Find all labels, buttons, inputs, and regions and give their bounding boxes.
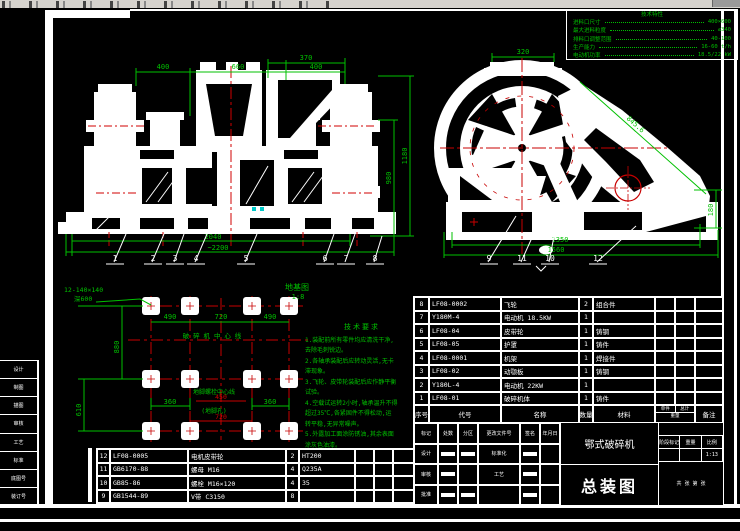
spec-row: 排料口调整范围40-100 (567, 34, 737, 42)
margin-strip-row: 装订号 (0, 487, 37, 505)
bom-cell: 9 (97, 490, 110, 504)
bom-cell (675, 338, 695, 352)
bom-cell: 破碎机体 (501, 392, 579, 406)
bom-cell (675, 324, 695, 338)
front-view-balloons: 1 2 3 4 5 6 7 8 (106, 234, 384, 264)
bom-cell (695, 365, 723, 379)
bom-cell: 飞轮 (501, 297, 579, 311)
note-line: 转平稳,无异常噪声。 (305, 420, 419, 431)
bom-cell: V带 C3150 (188, 490, 286, 504)
cad-drawing-canvas: 400 660 400 370 1180 980 2040 ~2200 1 (0, 0, 740, 531)
tb-right-top-cell (659, 423, 723, 436)
dim-610: 610 (75, 404, 83, 417)
bom-cell: 电机皮带轮 (188, 449, 286, 463)
note-line: 去除毛刺锐边。 (305, 346, 419, 357)
bom-cell: Y180M-4 (429, 311, 501, 325)
bom-cell: 4 (414, 351, 429, 365)
balloon-5: 5 (244, 254, 249, 263)
bom-cell (393, 476, 415, 490)
dim-720-top: 720 (215, 313, 228, 321)
margin-strip-row: 标准 (0, 451, 37, 469)
dim-400-right: 400 (310, 63, 323, 71)
tb-label: 比例 (702, 436, 723, 448)
bolt-callout-line2: 深600 (74, 294, 92, 303)
bom-cell (675, 311, 695, 325)
spec-label: 最大进料粒度 (573, 26, 606, 34)
bom-cell: 1 (579, 351, 593, 365)
bom-cell: 6 (414, 324, 429, 338)
dim-490-left: 490 (164, 313, 177, 321)
balloon-3: 3 (173, 254, 178, 263)
margin-strip-row: 描图 (0, 396, 37, 414)
signature-mark (461, 493, 475, 497)
tb-cell (540, 464, 560, 485)
spec-row: 生产能力16-60 t/h (567, 43, 737, 51)
dim-1180: 1180 (401, 148, 409, 165)
bom-cell (593, 311, 655, 325)
bom-cell (695, 297, 723, 311)
dim-180: 180 (707, 204, 715, 217)
bom-cell (393, 490, 415, 504)
leader-dots (605, 54, 694, 56)
bom-cell (655, 351, 675, 365)
signature-mark (523, 452, 537, 456)
bom-cell (655, 338, 675, 352)
dim-370: 370 (300, 54, 313, 62)
bom-cell: 11 (97, 463, 110, 477)
bom-cell (675, 365, 695, 379)
bom-cell: 螺栓 M16×120 (188, 476, 286, 490)
bom-cell (675, 351, 695, 365)
bom-cell: GB85-86 (110, 476, 188, 490)
tb-label: 阶段标记 (659, 436, 680, 448)
bom-cell: 电动机 22KW (501, 378, 579, 392)
balloon-8: 8 (373, 254, 378, 263)
bom-cell (355, 490, 374, 504)
bom-cell: 护罩 (501, 338, 579, 352)
bom-cell: GB1544-89 (110, 490, 188, 504)
dim-660: 660 (232, 63, 245, 71)
bom-table-right: 8 LF08-0002 飞轮 2 组合件 7 Y180M-4 电动机 18.5K… (413, 296, 724, 424)
tb-label: 更改文件号 (478, 423, 520, 444)
bom-cell: 1 (579, 378, 593, 392)
tb-label: 审核 (414, 464, 438, 485)
bom-header-cell: 序号 (414, 405, 429, 423)
note-line: 3.飞轮、皮带轮装配后应作静平衡 (305, 378, 419, 389)
sheet-count-cell: 共 张 第 张 (659, 462, 723, 505)
bom-cell: LF08-0001 (429, 351, 501, 365)
balloon-12: 12 (593, 254, 603, 263)
dim-490-right: 490 (264, 313, 277, 321)
spec-row: 最大进料粒度≤340 (567, 26, 737, 34)
bom-cell (355, 463, 374, 477)
bom-cell (355, 476, 374, 490)
dim-880: 880 (113, 341, 121, 354)
bom-cell: GB6170-88 (110, 463, 188, 477)
bom-table-left: 12 LF08-0005 电机皮带轮 2 HT200 11 GB6170-88 … (96, 448, 416, 504)
dim-400-left: 400 (157, 63, 170, 71)
bom-cell (655, 324, 675, 338)
bom-cell: 电动机 18.5KW (501, 311, 579, 325)
tb-cell (458, 485, 478, 506)
drawing-type-title: 总装图 (561, 465, 658, 506)
bom-cell (695, 392, 723, 406)
bom-header-weight-cell: 单件 总计 重量 (655, 405, 695, 423)
note-line: 试验。 (305, 388, 419, 399)
tb-label: 年月日 (540, 423, 560, 444)
note-line: 1.装配前所有零件均应清洗干净, (305, 336, 419, 347)
foundation-dimensions (78, 299, 289, 431)
tb-label: 工艺 (478, 464, 520, 485)
signature-mark (461, 452, 475, 456)
bom-cell: 4 (286, 463, 299, 477)
bom-cell: LF08-04 (429, 324, 501, 338)
spec-value: 18.5/22 kW (698, 52, 731, 58)
bom-cell: LF08-0005 (110, 449, 188, 463)
bom-cell: 铸件 (593, 392, 655, 406)
bom-cell: 1 (414, 392, 429, 406)
bom-cell (655, 297, 675, 311)
bom-header-cell: 材料 (593, 405, 655, 423)
spec-value: ≤340 (718, 27, 731, 33)
tb-label: 标准化 (478, 444, 520, 465)
tb-cell (520, 485, 540, 506)
balloon-1: 1 (113, 254, 118, 263)
bom-cell (393, 449, 415, 463)
tb-cell (438, 485, 458, 506)
foundation-title: 地基图 (285, 282, 309, 292)
bom-cell: 1 (579, 338, 593, 352)
note-line: 2.各轴承装配后应转动灵活,无卡 (305, 357, 419, 368)
bom-header-cell: 备注 (695, 405, 723, 423)
dim-320: 320 (517, 48, 530, 56)
drawing-scale-value: 1:13 (702, 449, 723, 461)
bom-cell: 1 (579, 392, 593, 406)
leader-dots (605, 21, 704, 23)
bom-cell: 2 (579, 297, 593, 311)
leader-dots (616, 38, 708, 40)
label-crusher-centerline: 破 碎 机 中 心 线 (183, 331, 242, 340)
spec-label: 排料口调整范围 (573, 35, 612, 43)
spec-value: 16-60 t/h (701, 44, 731, 50)
margin-strip-row: 制图 (0, 378, 37, 396)
signature-mark (523, 493, 537, 497)
tb-cell (458, 464, 478, 485)
balloon-11: 11 (517, 254, 527, 263)
spec-value: 400×600 (708, 19, 731, 25)
bom-cell (695, 311, 723, 325)
bom-cell: LF08-0002 (429, 297, 501, 311)
tb-cell (478, 485, 520, 506)
bom-cell: 1 (579, 365, 593, 379)
notes-title: 技术要求 (305, 322, 419, 333)
dim-1560: 1560 (548, 246, 565, 254)
bom-cell (655, 378, 675, 392)
technical-notes: 技术要求 1.装配前所有零件均应清洗干净, 去除毛刺锐边。 2.各轴承装配后应转… (305, 322, 419, 451)
dim-360-left: 360 (164, 398, 177, 406)
leader-dots (599, 46, 697, 48)
bom-header-cell: 数量 (579, 405, 593, 423)
bom-cell (374, 476, 393, 490)
tb-value (680, 449, 701, 461)
tb-right-values: 1:13 (659, 449, 723, 462)
bom-cell: 1 (579, 324, 593, 338)
bom-cell (374, 490, 393, 504)
bom-cell: 35 (299, 476, 355, 490)
side-view: 320 845.6 180 1350 1560 9 11 10 12 (440, 48, 722, 271)
balloon-9: 9 (487, 254, 492, 263)
bom-cell: 10 (97, 476, 110, 490)
dim-980: 980 (385, 172, 393, 185)
bom-cell: 12 (97, 449, 110, 463)
signature-mark (441, 472, 455, 476)
margin-strip-row: 审核 (0, 414, 37, 432)
bolt-callout-line1: 12-140×140 (64, 286, 103, 294)
tb-cell (438, 464, 458, 485)
tb-cell (458, 444, 478, 465)
bom-cell: Q235A (299, 463, 355, 477)
bom-cell (695, 324, 723, 338)
bom-header-cell: 名称 (501, 405, 579, 423)
bom-cell: 4 (286, 476, 299, 490)
tb-label: 标记 (414, 423, 438, 444)
tb-cell (540, 485, 560, 506)
spec-table-title: 技术特性 (567, 10, 737, 18)
balloon-10: 10 (545, 254, 555, 263)
bom-cell: 铸钢 (593, 365, 655, 379)
bom-cell: LF08-02 (429, 365, 501, 379)
title-block-right: 阶段标记 重量 比例 1:13 共 张 第 张 (659, 423, 723, 505)
signature-mark (441, 452, 455, 456)
balloon-4: 4 (194, 254, 199, 263)
bom-cell (695, 338, 723, 352)
bom-cell (374, 463, 393, 477)
bom-cell: HT200 (299, 449, 355, 463)
title-block-revision-grid: 标记 处数 分区 更改文件号 签名 年月日 设计 标准化 审核 工艺 批准 (414, 423, 561, 505)
foundation-plan: 490 720 490 880 610 360 360 450 720 12-1… (64, 282, 312, 442)
signature-mark (441, 493, 455, 497)
spec-label: 电动机功率 (573, 51, 601, 59)
balloon-6: 6 (323, 254, 328, 263)
bom-cell: 动颚板 (501, 365, 579, 379)
bom-cell: 1 (579, 311, 593, 325)
bom-header-unit: 单件 (656, 406, 675, 412)
bom-cell (675, 297, 695, 311)
spec-label: 生产能力 (573, 43, 595, 51)
bom-cell: 皮带轮 (501, 324, 579, 338)
bom-cell (675, 378, 695, 392)
bom-cell (675, 392, 695, 406)
bom-cell: 2 (414, 378, 429, 392)
bom-cell: 5 (414, 338, 429, 352)
tb-right-labels: 阶段标记 重量 比例 (659, 436, 723, 449)
bom-cell: 组合件 (593, 297, 655, 311)
note-line: 4.空载试运转2小时,轴承温升不得 (305, 399, 419, 410)
balloon-2: 2 (151, 254, 156, 263)
balloon-7: 7 (344, 254, 349, 263)
bom-header-cell: 代号 (429, 405, 501, 423)
bom-cell: 焊接件 (593, 351, 655, 365)
dim-2200: ~2200 (207, 244, 228, 252)
bom-cell: 8 (414, 297, 429, 311)
spec-table: 技术特性 进料口尺寸400×600 最大进料粒度≤340 排料口调整范围40-1… (566, 9, 738, 60)
label-anchor-bolt-centerline: 地脚螺栓中心线 (193, 388, 235, 396)
title-block: 标记 处数 分区 更改文件号 签名 年月日 设计 标准化 审核 工艺 批准 (413, 422, 724, 506)
bom-cell: Y180L-4 (429, 378, 501, 392)
tb-cell (520, 464, 540, 485)
tb-label: 处数 (438, 423, 458, 444)
bom-cell: 机架 (501, 351, 579, 365)
bom-cell: 铸件 (593, 338, 655, 352)
tb-cell (438, 444, 458, 465)
dim-360-right: 360 (264, 398, 277, 406)
bom-header-total: 总计 (675, 406, 695, 412)
tb-label: 签名 (520, 423, 540, 444)
tb-value (659, 449, 680, 461)
spec-row: 进料口尺寸400×600 (567, 18, 737, 26)
front-view: 400 660 400 370 1180 980 2040 ~2200 1 (58, 54, 414, 264)
bom-cell (374, 449, 393, 463)
bom-cell: 铸钢 (593, 324, 655, 338)
title-block-center: 鄂式破碎机 总装图 (561, 423, 659, 505)
tb-cell (540, 444, 560, 465)
leader-dots (610, 29, 714, 31)
tb-label: 设计 (414, 444, 438, 465)
bom-cell (299, 490, 355, 504)
bom-cell (695, 378, 723, 392)
bom-cell (655, 311, 675, 325)
spec-label: 进料口尺寸 (573, 18, 601, 26)
drawing-product-title: 鄂式破碎机 (561, 423, 658, 465)
signature-mark (523, 472, 537, 476)
bom-header-weight: 重量 (671, 413, 680, 419)
bom-cell (355, 449, 374, 463)
foundation-scale: 1:8 (292, 293, 305, 301)
bom-cell: 7 (414, 311, 429, 325)
margin-strip-row: 工艺 (0, 433, 37, 451)
margin-strip-row: 底图号 (0, 469, 37, 487)
note-line: 超过35℃,各紧固件不得松动,运 (305, 409, 419, 420)
bom-cell (593, 378, 655, 392)
bom-cell: 8 (286, 490, 299, 504)
tb-label: 批准 (414, 485, 438, 506)
label-anchor-hole: (地脚孔) (201, 407, 226, 415)
bom-cell (695, 351, 723, 365)
note-line: 5.外露加工面涂防锈油,其余表面 (305, 430, 419, 441)
bom-cell (655, 392, 675, 406)
bom-cell: LF08-01 (429, 392, 501, 406)
bom-cell: 2 (286, 449, 299, 463)
bom-cell: 3 (414, 365, 429, 379)
tb-label: 重量 (680, 436, 701, 448)
bom-cell (655, 365, 675, 379)
tb-label: 分区 (458, 423, 478, 444)
spec-row: 电动机功率18.5/22 kW (567, 51, 737, 59)
margin-strip-row: 设计 (0, 360, 37, 378)
bom-cell: 螺母 M16 (188, 463, 286, 477)
bom-cell (393, 463, 415, 477)
tb-cell (520, 444, 540, 465)
bom-cell: LF08-05 (429, 338, 501, 352)
note-line: 滞现象。 (305, 367, 419, 378)
margin-signature-strip: 设计 制图 描图 审核 工艺 标准 底图号 装订号 (0, 360, 39, 505)
spec-value: 40-100 (711, 36, 731, 42)
